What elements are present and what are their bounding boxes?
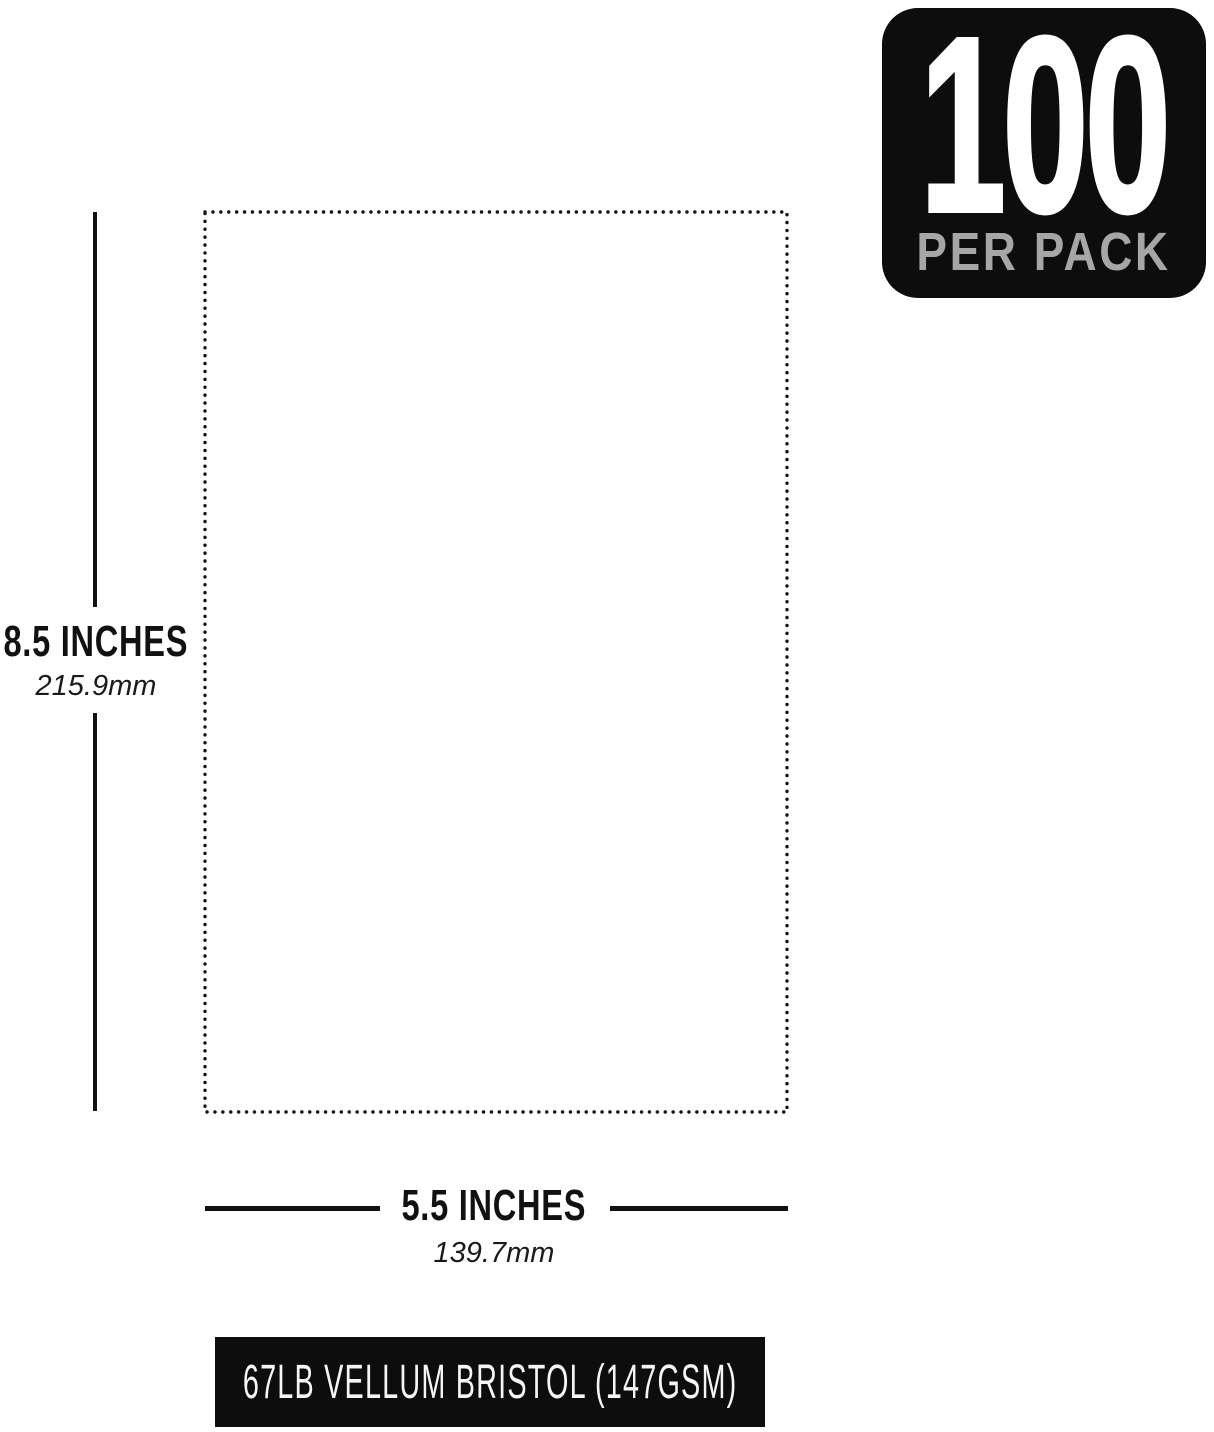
width-mm-text: 139.7mm [434,1237,555,1270]
width-dimension-line-left [205,1206,380,1211]
pack-count-number: 100 [920,0,1167,250]
width-inches-text: 5.5 INCHES [402,1181,587,1231]
pack-count: 100 [882,22,1206,228]
pack-count-label: PER PACK [882,228,1206,276]
paper-weight-banner: 67LB VELLUM BRISTOL (147GSM) [215,1337,765,1427]
height-mm-text: 215.9mm [36,670,157,703]
height-inches-text: 8.5 INCHES [4,617,189,667]
product-dimension-diagram: 8.5 INCHES 215.9mm 5.5 INCHES 139.7mm 10… [0,0,1214,1432]
height-inches-label: 8.5 INCHES [0,618,192,666]
width-mm-label: 139.7mm [398,1236,590,1270]
paper-sheet-outline [201,208,791,1116]
per-pack-badge: 100 PER PACK [882,8,1206,298]
height-dimension-line-upper [93,212,97,607]
pack-count-label-text: PER PACK [917,225,1171,279]
paper-weight-label: 67LB VELLUM BRISTOL (147GSM) [243,1355,738,1410]
height-dimension-line-lower [93,713,97,1111]
width-inches-label: 5.5 INCHES [398,1182,590,1230]
height-mm-label: 215.9mm [0,668,192,704]
width-dimension-line-right [610,1206,788,1211]
